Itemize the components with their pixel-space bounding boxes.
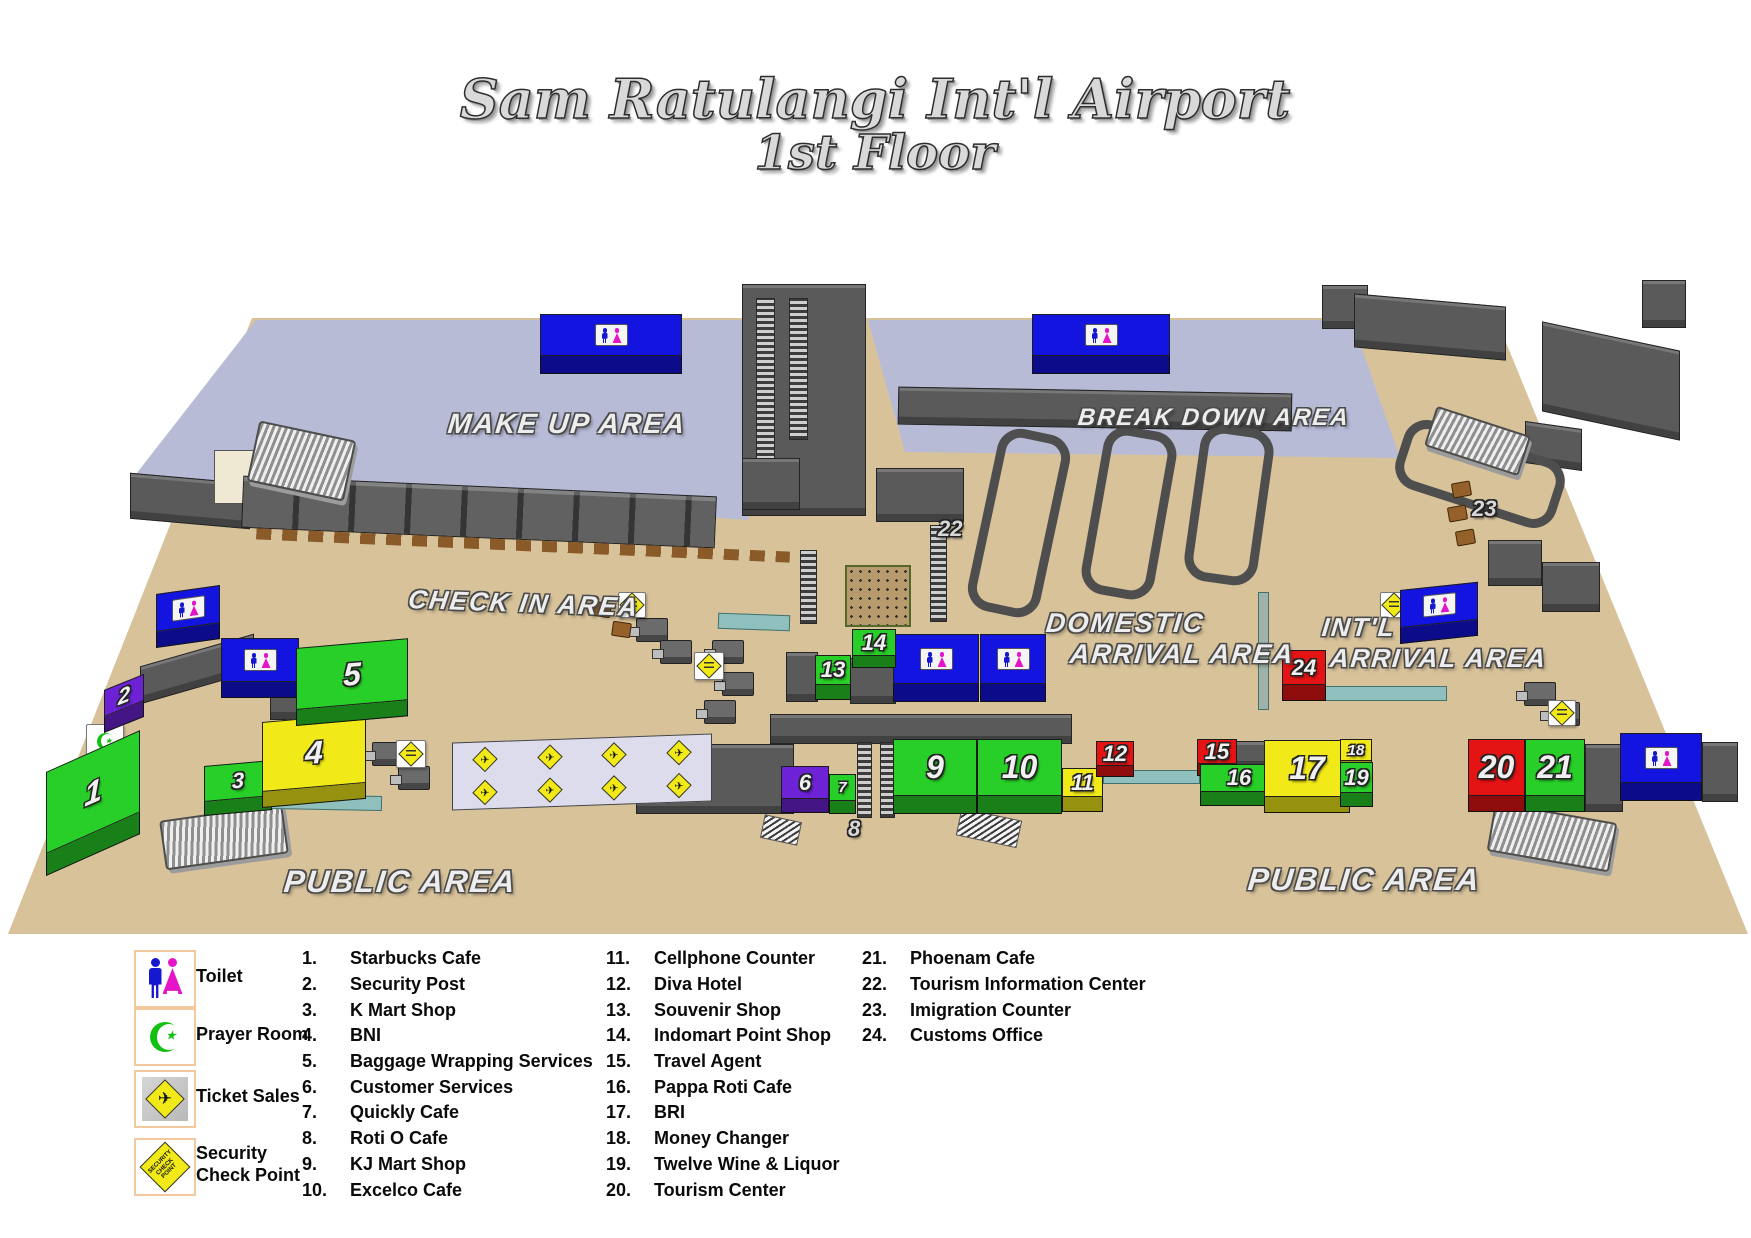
label-break-down-area: BREAK DOWN AREA xyxy=(1077,404,1352,432)
ticket-sales-icon: ✈ xyxy=(666,772,691,797)
legend-item-number: 5. xyxy=(302,1051,350,1072)
unit-13-souvenir-shop: 13 xyxy=(815,655,851,700)
legend-item-number: 14. xyxy=(606,1025,654,1046)
legend-item-name: Money Changer xyxy=(654,1128,789,1149)
legend-item-number: 3. xyxy=(302,1000,350,1021)
label-domestic-arrival-area: DOMESTIC ARRIVAL AREA xyxy=(1042,608,1295,670)
toilet-icon xyxy=(134,950,196,1008)
legend-item-number: 20. xyxy=(606,1180,654,1201)
legend-item: 23. Imigration Counter xyxy=(862,997,1146,1023)
legend-item-name: Excelco Cafe xyxy=(350,1180,462,1201)
legend-item-number: 23. xyxy=(862,1000,910,1021)
legend-label-prayer-room: Prayer Room xyxy=(196,1008,318,1062)
legend-item-number: 9. xyxy=(302,1154,350,1175)
legend-item: 17. BRI xyxy=(606,1100,840,1126)
escalator-icon xyxy=(800,550,817,624)
legend-item: 19. Twelve Wine & Liquor xyxy=(606,1152,840,1178)
toilet-icon xyxy=(1645,747,1678,769)
wall-block xyxy=(1702,742,1738,802)
checkin-desk-strip: ✈ ✈ ✈ ✈ ✈ ✈ ✈ ✈ xyxy=(452,733,712,810)
legend-item-name: Customer Services xyxy=(350,1077,513,1098)
legend-item-name: BNI xyxy=(350,1025,381,1046)
wall-block xyxy=(1542,562,1600,612)
toilet-block xyxy=(540,314,682,374)
wall-block xyxy=(786,652,818,702)
legend-item-number: 6. xyxy=(302,1077,350,1098)
legend-item-number: 16. xyxy=(606,1077,654,1098)
legend-item-name: Roti O Cafe xyxy=(350,1128,448,1149)
ticket-sales-icon: ✈ xyxy=(134,1070,196,1128)
legend-label-toilet: Toilet xyxy=(196,950,318,1004)
unit-19-twelve-wine-liquor: 19 xyxy=(1340,762,1373,807)
legend-item-name: Diva Hotel xyxy=(654,974,742,995)
marker-22-tourism-information-center: 22 xyxy=(938,516,962,542)
marker-8-roti-o-cafe: 8 xyxy=(848,816,860,842)
legend-item-name: Baggage Wrapping Services xyxy=(350,1051,593,1072)
unit-20-tourism-center: 20 xyxy=(1468,739,1525,812)
legend-item-name: Security Post xyxy=(350,974,465,995)
unit-7-quickly-cafe: 7 xyxy=(829,774,856,814)
toilet-block xyxy=(221,638,299,698)
unit-14-indomart-point-shop: 14 xyxy=(852,629,896,668)
legend-item-number: 18. xyxy=(606,1128,654,1149)
legend-item: 1. Starbucks Cafe xyxy=(302,946,593,972)
xray-machine xyxy=(636,618,668,642)
legend-item-number: 19. xyxy=(606,1154,654,1175)
security-check-sign xyxy=(396,740,426,768)
label-public-area-right: PUBLIC AREA xyxy=(1246,862,1482,898)
legend-item-name: Pappa Roti Cafe xyxy=(654,1077,792,1098)
label-intl-arrival-area: INT'L ARRIVAL AREA xyxy=(1298,612,1547,674)
legend-item-name: Souvenir Shop xyxy=(654,1000,781,1021)
legend-item: 24. Customs Office xyxy=(862,1023,1146,1049)
legend-item: 6. Customer Services xyxy=(302,1074,593,1100)
legend-item-number: 21. xyxy=(862,948,910,969)
legend-item: 16. Pappa Roti Cafe xyxy=(606,1074,840,1100)
wall-block xyxy=(1542,321,1680,440)
toilet-block xyxy=(1032,314,1170,374)
legend-item-number: 24. xyxy=(862,1025,910,1046)
legend-item-name: Quickly Cafe xyxy=(350,1102,459,1123)
legend-directory-col1: 1. Starbucks Cafe 2. Security Post 3. K … xyxy=(302,946,593,1203)
ticket-sales-icon: ✈ xyxy=(602,775,627,800)
walkway-strip xyxy=(718,613,791,632)
wall-block xyxy=(1488,540,1542,586)
toilet-block xyxy=(1620,733,1702,801)
airport-floorplan-page: Sam Ratulangi Int'l Airport 1st Floor xyxy=(0,0,1751,1238)
toilet-block xyxy=(980,634,1046,702)
legend-item: 4. BNI xyxy=(302,1023,593,1049)
legend-item-name: Indomart Point Shop xyxy=(654,1025,831,1046)
unit-9-kj-mart-shop: 9 xyxy=(893,739,977,814)
legend-item: 14. Indomart Point Shop xyxy=(606,1023,840,1049)
legend-item: 11. Cellphone Counter xyxy=(606,946,840,972)
luggage-icon xyxy=(611,621,632,638)
xray-machine xyxy=(704,700,736,724)
escalator-icon xyxy=(756,298,775,475)
legend-item: 3. K Mart Shop xyxy=(302,997,593,1023)
wall-block xyxy=(1585,744,1623,812)
garden-planter xyxy=(845,565,911,627)
legend-item: 21. Phoenam Cafe xyxy=(862,946,1146,972)
ticket-sales-icon: ✈ xyxy=(473,779,498,804)
legend-item: 9. KJ Mart Shop xyxy=(302,1152,593,1178)
toilet-block xyxy=(893,634,979,702)
legend-item-number: 4. xyxy=(302,1025,350,1046)
security-check-sign xyxy=(694,652,724,680)
legend-item: 22. Tourism Information Center xyxy=(862,972,1146,998)
legend-item: 20. Tourism Center xyxy=(606,1177,840,1203)
prayer-room-icon: ★ xyxy=(134,1008,196,1066)
wall-block xyxy=(876,468,964,522)
ticket-sales-icon: ✈ xyxy=(602,742,627,767)
legend-item: 15. Travel Agent xyxy=(606,1049,840,1075)
escalator-icon xyxy=(857,742,872,818)
unit-21-phoenam-cafe: 21 xyxy=(1525,739,1585,812)
legend-item-name: Twelve Wine & Liquor xyxy=(654,1154,840,1175)
toilet-icon xyxy=(920,648,953,670)
label-public-area-left: PUBLIC AREA xyxy=(282,864,518,900)
legend-label-ticket-sales: Ticket Sales xyxy=(196,1070,318,1124)
escalator-icon xyxy=(789,298,808,440)
legend-item-number: 2. xyxy=(302,974,350,995)
security-check-point-icon: SECURITY CHECK POINT xyxy=(134,1138,196,1196)
legend-item-name: Starbucks Cafe xyxy=(350,948,481,969)
legend-item: 13. Souvenir Shop xyxy=(606,997,840,1023)
security-check-sign xyxy=(1548,700,1576,726)
legend-item-number: 10. xyxy=(302,1180,350,1201)
legend-item-name: Phoenam Cafe xyxy=(910,948,1035,969)
unit-5-baggage-wrapping-services: 5 xyxy=(296,638,408,726)
ticket-sales-icon: ✈ xyxy=(537,777,562,802)
walkway-strip xyxy=(1320,686,1447,701)
legend-item: 5. Baggage Wrapping Services xyxy=(302,1049,593,1075)
xray-machine xyxy=(660,640,692,664)
wall-block xyxy=(742,458,800,510)
legend-item-number: 11. xyxy=(606,948,654,969)
toilet-icon xyxy=(172,595,205,622)
legend-item-name: Tourism Center xyxy=(654,1180,786,1201)
legend-item-number: 15. xyxy=(606,1051,654,1072)
toilet-icon xyxy=(595,324,628,346)
legend-item-name: Tourism Information Center xyxy=(910,974,1146,995)
legend-item-name: Cellphone Counter xyxy=(654,948,815,969)
xray-machine xyxy=(398,766,430,790)
legend-item-name: Customs Office xyxy=(910,1025,1043,1046)
toilet-icon xyxy=(997,648,1030,670)
legend-item-number: 12. xyxy=(606,974,654,995)
legend-label-security-check-point: Security Check Point xyxy=(196,1138,318,1192)
legend-item-number: 1. xyxy=(302,948,350,969)
legend-item: 7. Quickly Cafe xyxy=(302,1100,593,1126)
legend-item-number: 13. xyxy=(606,1000,654,1021)
legend-item-number: 22. xyxy=(862,974,910,995)
unit-4-bni: 4 xyxy=(262,713,366,808)
toilet-icon xyxy=(244,649,277,671)
ticket-sales-icon: ✈ xyxy=(473,746,498,771)
toilet-block xyxy=(156,585,220,648)
legend-item-name: Travel Agent xyxy=(654,1051,761,1072)
unit-17-bri: 17 xyxy=(1264,740,1350,813)
legend-item: 2. Security Post xyxy=(302,972,593,998)
legend-item-name: BRI xyxy=(654,1102,685,1123)
legend: Toilet ★ Prayer Room ✈ Ticket Sales SECU… xyxy=(0,0,1751,298)
xray-machine xyxy=(722,672,754,696)
toilet-icon xyxy=(1085,324,1118,346)
legend-item-name: KJ Mart Shop xyxy=(350,1154,466,1175)
legend-directory-col3: 21. Phoenam Cafe 22. Tourism Information… xyxy=(862,946,1146,1049)
ticket-sales-icon: ✈ xyxy=(537,744,562,769)
legend-item: 18. Money Changer xyxy=(606,1126,840,1152)
legend-item-name: Imigration Counter xyxy=(910,1000,1071,1021)
legend-item-number: 7. xyxy=(302,1102,350,1123)
marker-23-imigration-counter: 23 xyxy=(1472,496,1496,522)
legend-item-name: K Mart Shop xyxy=(350,1000,456,1021)
legend-item: 8. Roti O Cafe xyxy=(302,1126,593,1152)
ticket-sales-icon: ✈ xyxy=(666,739,691,764)
unit-12-diva-hotel: 12 xyxy=(1096,741,1134,777)
legend-item: 12. Diva Hotel xyxy=(606,972,840,998)
legend-item-number: 17. xyxy=(606,1102,654,1123)
label-make-up-area: MAKE UP AREA xyxy=(446,408,688,440)
legend-item: 10. Excelco Cafe xyxy=(302,1177,593,1203)
legend-directory-col2: 11. Cellphone Counter 12. Diva Hotel 13.… xyxy=(606,946,840,1203)
legend-item-number: 8. xyxy=(302,1128,350,1149)
unit-6-customer-services: 6 xyxy=(781,766,829,813)
unit-10-excelco-cafe: 10 xyxy=(977,739,1062,814)
